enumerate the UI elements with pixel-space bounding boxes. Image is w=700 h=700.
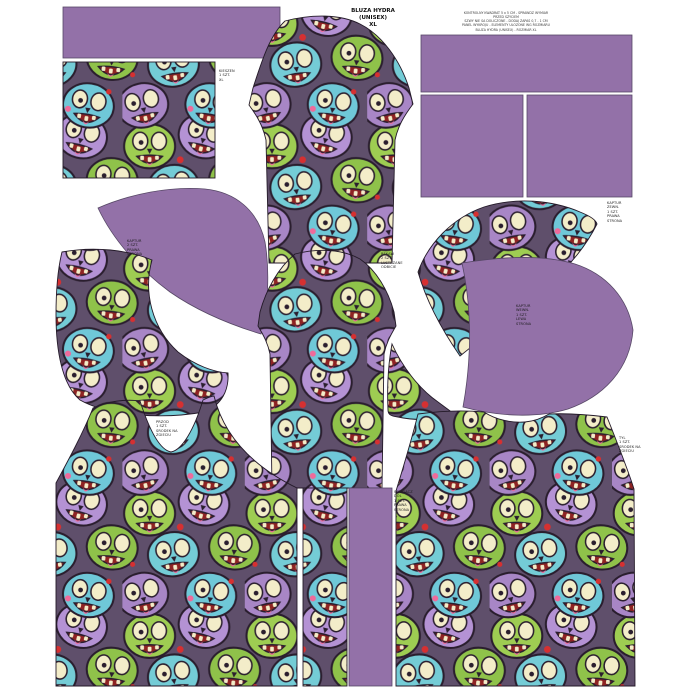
panel-instructions: KONTROLNY KWADRAT 5 x 5 CM - SPRAWDZ WYM…: [458, 11, 554, 32]
piece-purple-rect-right: [527, 95, 632, 197]
sewing-pattern-panel: BLUZA HYDRA (UNISEX) XL KONTROLNY KWADRA…: [0, 0, 700, 700]
piece-wedge-print: [388, 344, 455, 419]
pattern-pieces-canvas: [0, 0, 700, 700]
label-pocket-panel: KIESZEN 1 SZT. XL: [219, 69, 235, 82]
piece-ribbing-strip-purple: [349, 488, 392, 686]
label-sleeves: REKAW 2 SZT. LUSTRZANE ODBICIE: [381, 252, 403, 270]
panel-title: BLUZA HYDRA (UNISEX) XL: [342, 8, 404, 29]
piece-purple-rect-wide: [421, 35, 632, 92]
piece-ribbing-strip-print: [303, 488, 347, 686]
piece-pocket-panel-print: [63, 62, 215, 178]
label-front-bodice: PRZOD 1 SZT. SRODEK NA ZGIECIU: [156, 420, 178, 438]
piece-back-bodice-print: [396, 411, 635, 686]
label-ribbing-strip: SCIAGACZ DOL 1 SZT. PRAWA STRONA: [394, 490, 413, 512]
piece-sleeve-2-print: [258, 250, 396, 488]
piece-sleeve-1-print: [249, 16, 413, 263]
piece-hood-purple-right: [462, 258, 633, 416]
piece-front-bodice-print: [56, 396, 297, 686]
piece-top-purple-strip: [63, 7, 280, 58]
piece-purple-rect-left: [421, 95, 523, 197]
label-hood-front-print: KAPTUR 2 SZT. PRAWA STRONA: [127, 239, 142, 257]
label-back-bodice: TYL 1 SZT. SRODEK NA ZGIECIU: [619, 436, 641, 454]
label-hood-inner: KAPTUR WEWN. 1 SZT. LEWA STRONA: [516, 304, 531, 326]
label-hood-outer: KAPTUR ZEWN. 1 SZT. PRAWA STRONA: [607, 201, 622, 223]
